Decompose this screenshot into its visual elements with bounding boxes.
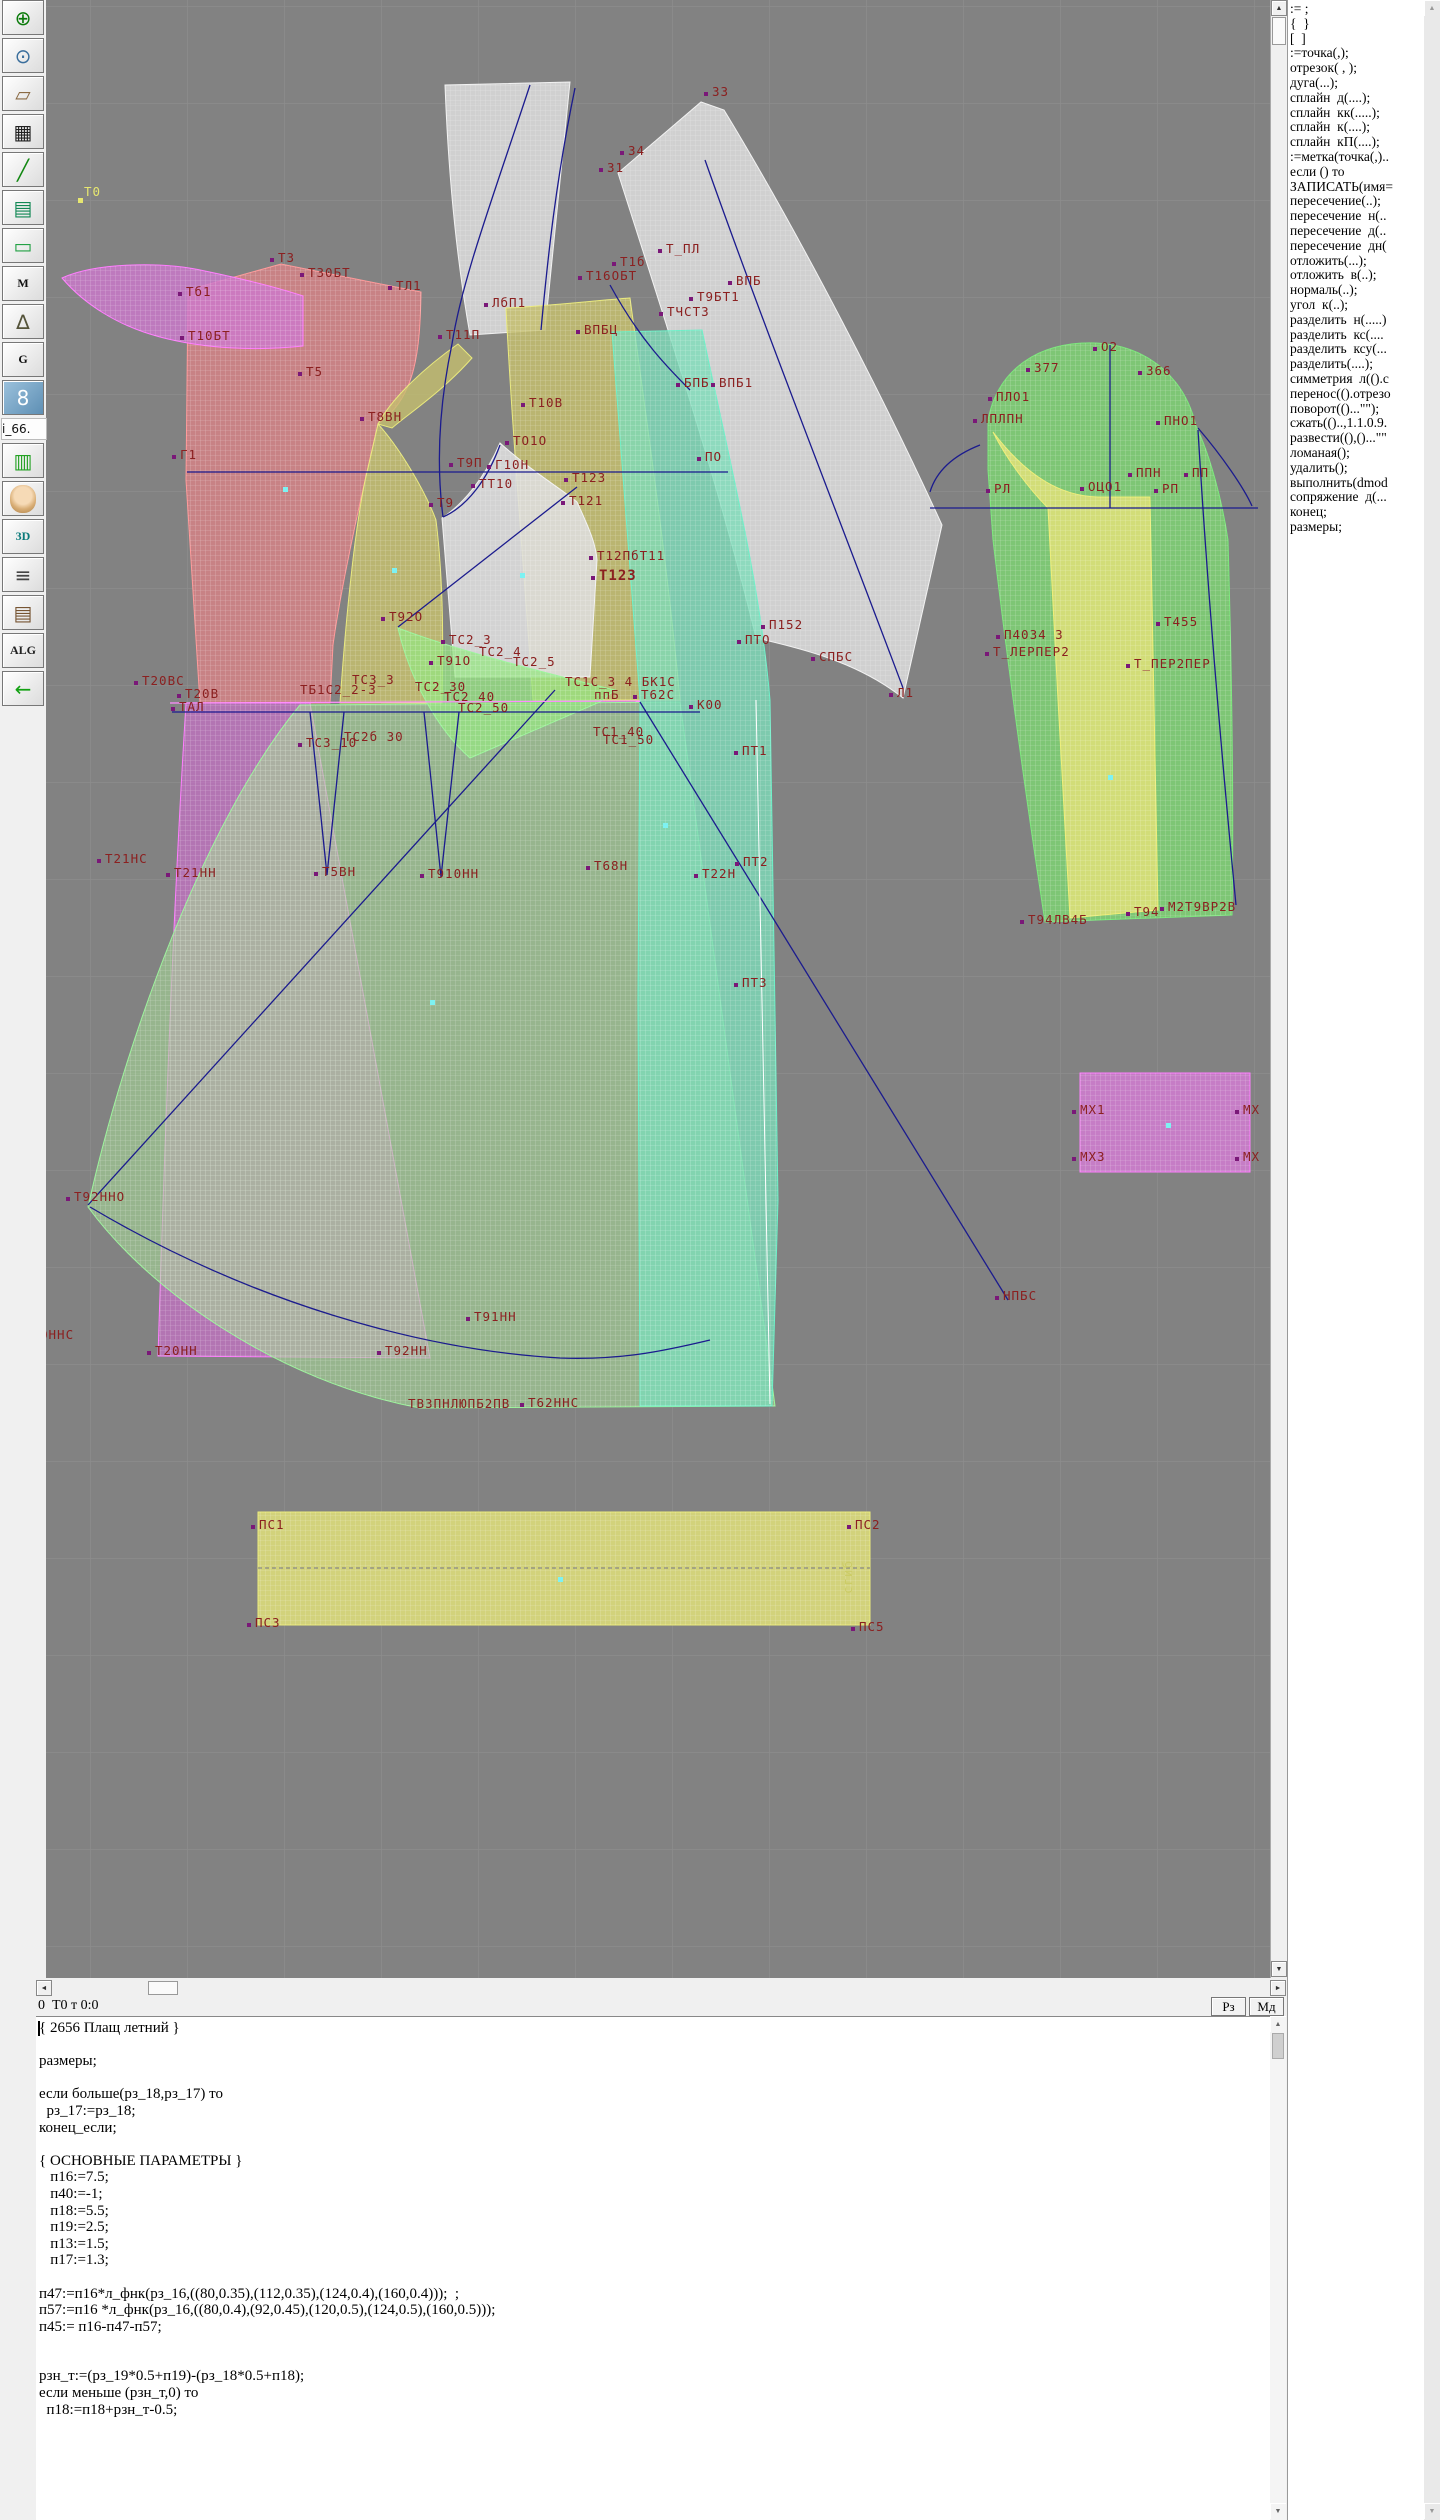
canvas-label: МХ3: [1080, 1149, 1106, 1164]
command-item[interactable]: разделить н(.....): [1288, 313, 1425, 328]
canvas-label: ВПБ: [736, 273, 762, 288]
command-item[interactable]: разделить(....);: [1288, 357, 1425, 372]
canvas-label: ТАЛ: [179, 699, 205, 714]
point-marker: [1156, 622, 1160, 626]
point-marker: [988, 397, 992, 401]
command-item[interactable]: отрезок( , );: [1288, 61, 1425, 76]
point-marker: [521, 403, 525, 407]
point-marker: [1235, 1157, 1239, 1161]
command-item[interactable]: сплайн к(....);: [1288, 120, 1425, 135]
point-marker: [1235, 1110, 1239, 1114]
label-tag-icon: ▱: [15, 84, 30, 104]
canvas-label: Т3: [278, 250, 295, 265]
point-marker: [66, 1197, 70, 1201]
label-tag-icon[interactable]: ▱: [2, 76, 44, 111]
text-list-icon[interactable]: ≡: [2, 557, 44, 592]
exit-arrow-icon[interactable]: ←: [2, 671, 44, 706]
scroll-up-icon[interactable]: ▲: [1271, 0, 1287, 16]
canvas-label: ПТО: [745, 632, 771, 647]
cyan-marker: [520, 573, 525, 578]
scroll-up-icon[interactable]: ▲: [1270, 2016, 1286, 2032]
zoom-in-icon: ⊕: [15, 8, 32, 28]
canvas-label: М2Т9ВР2В: [1168, 899, 1236, 914]
canvas-label: 34: [628, 143, 645, 158]
point-marker: [429, 503, 433, 507]
point-marker: [429, 661, 433, 665]
canvas-label: Т_ПЕР2ПЕР: [1134, 656, 1211, 671]
command-item[interactable]: нормаль(..);: [1288, 283, 1425, 298]
command-item[interactable]: выполнить(dmod: [1288, 476, 1425, 491]
point-marker: [578, 276, 582, 280]
grid-icon[interactable]: ▦: [2, 114, 44, 149]
code-line: конец_если;: [36, 2120, 1270, 2137]
point-marker: [178, 292, 182, 296]
threed-icon[interactable]: 3D: [2, 519, 44, 554]
canvas-label: ТС2_50: [458, 700, 509, 715]
canvas-label: ПТ3: [742, 975, 768, 990]
command-item[interactable]: угол к(..);: [1288, 298, 1425, 313]
scroll-left-icon[interactable]: ◄: [36, 1980, 52, 1996]
canvas-label: Т10БТ: [188, 328, 231, 343]
canvas-label: ВПБ1: [719, 375, 753, 390]
command-item[interactable]: [ ]: [1288, 32, 1425, 47]
canvas-label: Т0: [84, 184, 101, 199]
canvas-label: Т9П: [457, 455, 483, 470]
pattern-tag-icon[interactable]: ▭: [2, 228, 44, 263]
canvas-label: ПС2: [855, 1517, 881, 1532]
alg-icon: ALG: [10, 643, 36, 658]
point-marker: [97, 859, 101, 863]
canvas-label: Т22Н: [702, 866, 736, 881]
point-marker: [180, 336, 184, 340]
canvas-label: Л1: [897, 685, 914, 700]
canvas-label: Т11П: [446, 327, 480, 342]
canvas-label: Т_ПЛ: [666, 241, 700, 256]
point-marker: [889, 693, 893, 697]
scroll-down-icon[interactable]: ▼: [1271, 1961, 1287, 1977]
canvas-label: Т62ННС: [528, 1395, 579, 1410]
canvas-label: Т62С: [641, 687, 675, 702]
grid-icon: ▦: [14, 122, 33, 142]
canvas-horizontal-scrollbar[interactable]: ◄ ►: [36, 1980, 1286, 1997]
zoom-out-icon[interactable]: ⊙: [2, 38, 44, 73]
canvas-label: Т910НН: [428, 866, 479, 881]
canvas-label: Г1: [180, 447, 197, 462]
point-marker: [381, 617, 385, 621]
point-marker: [561, 501, 565, 505]
point-marker: [420, 874, 424, 878]
document-chart-icon[interactable]: ▤: [2, 190, 44, 225]
command-item[interactable]: разделить ксу(...: [1288, 342, 1425, 357]
point-marker: [711, 383, 715, 387]
code-editor[interactable]: { 2656 Плащ летний } размеры; если больш…: [36, 2016, 1270, 2520]
point-marker: [520, 1403, 524, 1407]
point-marker: [377, 1351, 381, 1355]
command-item[interactable]: разделить кс(....: [1288, 328, 1425, 343]
canvas-label: РП: [1162, 481, 1179, 496]
point-marker: [986, 489, 990, 493]
point-marker: [298, 372, 302, 376]
command-item[interactable]: сплайн кк(.....);: [1288, 106, 1425, 121]
segment-icon[interactable]: ╱: [2, 152, 44, 187]
code-line: [36, 2037, 1270, 2054]
books-icon[interactable]: ▤: [2, 595, 44, 630]
point-marker: [1156, 421, 1160, 425]
canvas-label: БПБ: [684, 375, 710, 390]
code-line: если меньше (рзн_т,0) то: [36, 2385, 1270, 2402]
command-item[interactable]: { }: [1288, 17, 1425, 32]
canvas-label: ТС1_50: [603, 732, 654, 747]
table-icon[interactable]: ▥: [2, 443, 44, 478]
canvas-label: Т5: [306, 364, 323, 379]
point-marker: [438, 335, 442, 339]
command-item[interactable]: сопряжение д(...: [1288, 490, 1425, 505]
canvas-label: 31: [607, 160, 624, 175]
canvas-label: Т21НС: [105, 851, 148, 866]
status-text: 0 Т0 т 0:0: [38, 1998, 99, 2014]
canvas-label: Т21НН: [174, 865, 217, 880]
canvas-label: Т455: [1164, 614, 1198, 629]
command-item[interactable]: перенос(().отрезо: [1288, 387, 1425, 402]
canvas-label: сгиб: [840, 1560, 855, 1594]
cyan-marker: [1166, 1123, 1171, 1128]
canvas-label: ОННС: [46, 1327, 74, 1342]
canvas-label: Т92НН: [385, 1343, 428, 1358]
cyan-marker: [663, 823, 668, 828]
code-line: п16:=7.5;: [36, 2169, 1270, 2186]
point-marker: [591, 576, 595, 580]
hscroll-thumb[interactable]: [148, 1981, 178, 1995]
canvas-vertical-scrollbar[interactable]: ▲ ▼: [1270, 0, 1287, 1978]
command-item[interactable]: отложить в(..);: [1288, 268, 1425, 283]
vscroll-thumb[interactable]: [1272, 17, 1286, 45]
ruler-8-icon[interactable]: 8: [2, 380, 44, 415]
cad-application-window: ⊕⊙▱▦╱▤▭M∆G8i_66.▥3D≡▤ALG←: [0, 0, 1440, 2520]
command-item[interactable]: пересечение д(..: [1288, 224, 1425, 239]
exit-arrow-icon: ←: [15, 679, 32, 699]
canvas-label: МХ: [1243, 1149, 1260, 1164]
scroll-down-icon[interactable]: ▼: [1424, 2503, 1440, 2519]
point-marker: [1160, 907, 1164, 911]
canvas-label: ТО1О: [513, 433, 547, 448]
canvas-label: Т92О: [389, 609, 423, 624]
canvas-label: ПТ2: [743, 854, 769, 869]
document-chart-icon: ▤: [14, 198, 33, 218]
command-item[interactable]: пересечение дн(: [1288, 239, 1425, 254]
g-module-icon[interactable]: G: [2, 342, 44, 377]
code-line: п18:=5.5;: [36, 2203, 1270, 2220]
point-marker: [471, 484, 475, 488]
point-marker: [388, 286, 392, 290]
canvas-label: Т123: [599, 568, 637, 584]
canvas-label: ТС2б 30: [344, 729, 404, 744]
code-line: { ОСНОВНЫЕ ПАРАМЕТРЫ }: [36, 2153, 1270, 2170]
command-item[interactable]: дуга(...);: [1288, 76, 1425, 91]
point-marker: [1020, 920, 1024, 924]
md-button[interactable]: Мд: [1249, 1997, 1284, 2016]
code-line: рзн_т:=(рз_19*0.5+п19)-(рз_18*0.5+п18);: [36, 2368, 1270, 2385]
canvas-label: ПС3: [255, 1615, 281, 1630]
point-marker: [1138, 371, 1142, 375]
point-marker: [171, 707, 175, 711]
canvas-label: Т92ННО: [74, 1189, 125, 1204]
point-marker: [689, 297, 693, 301]
canvas-label: ТТ10: [479, 476, 513, 491]
i66-label[interactable]: i_66.: [1, 418, 47, 440]
alg-icon[interactable]: ALG: [2, 633, 44, 668]
point-marker: [689, 705, 693, 709]
point-marker: [996, 635, 1000, 639]
point-marker: [734, 751, 738, 755]
canvas-label: ТС3_3: [352, 672, 395, 687]
canvas-label: НПБС: [1003, 1288, 1037, 1303]
canvas-label: ПП: [1192, 465, 1209, 480]
point-marker: [1026, 368, 1030, 372]
point-marker: [1093, 347, 1097, 351]
point-marker: [564, 478, 568, 482]
code-line: [36, 2070, 1270, 2087]
point-marker: [1184, 473, 1188, 477]
canvas-label: 366: [1146, 363, 1172, 378]
canvas-label: Тб1: [186, 284, 212, 299]
point-marker: [172, 455, 176, 459]
point-marker: [505, 441, 509, 445]
canvas-label: ПС5: [859, 1619, 885, 1634]
code-line: если больше(рз_18,рз_17) то: [36, 2086, 1270, 2103]
cyan-marker: [283, 487, 288, 492]
point-marker: [589, 556, 593, 560]
point-marker: [737, 640, 741, 644]
point-marker: [484, 303, 488, 307]
command-item[interactable]: сжать(()..,1.1.0.9.: [1288, 416, 1425, 431]
point-marker: [620, 151, 624, 155]
canvas-label: Т94ЛВ4Б: [1028, 912, 1088, 927]
canvas-label: Т94: [1134, 904, 1160, 919]
canvas-label: 377: [1034, 360, 1060, 375]
code-line: п45:= п16-п47-п57;: [36, 2319, 1270, 2336]
point-marker: [360, 417, 364, 421]
canvas-label: РЛ: [994, 481, 1011, 496]
cyan-marker: [558, 1577, 563, 1582]
point-marker: [466, 1317, 470, 1321]
point-marker: [973, 419, 977, 423]
canvas-label: МХ: [1243, 1102, 1260, 1117]
code-line: п47:=п16*л_фнк(рз_16,((80,0.35),(112,0.3…: [36, 2286, 1270, 2303]
pattern-canvas[interactable]: Т0Т3Т30БТТЛ1Тб1Т10БТТ5333431Т_ПЛТ1бТ16ОБ…: [46, 0, 1270, 1978]
canvas-label: МХ1: [1080, 1102, 1106, 1117]
point-marker: [314, 872, 318, 876]
cyan-marker: [1108, 775, 1113, 780]
canvas-label: ТЧСТ3: [667, 304, 710, 319]
canvas-label: Т30БТ: [308, 265, 351, 280]
point-marker: [761, 625, 765, 629]
editor-scroll-thumb[interactable]: [1272, 2033, 1284, 2059]
drafting-compass-icon: ∆: [16, 312, 29, 332]
code-line: п19:=2.5;: [36, 2219, 1270, 2236]
point-marker: [658, 249, 662, 253]
point-marker: [1072, 1157, 1076, 1161]
canvas-label: ЛПЛПН: [981, 411, 1024, 426]
command-item[interactable]: :=точка(,);: [1288, 46, 1425, 61]
canvas-label: ППН: [1136, 465, 1162, 480]
code-line: п13:=1.5;: [36, 2236, 1270, 2253]
scroll-right-icon[interactable]: ►: [1270, 1980, 1286, 1996]
code-line: п17:=1.3;: [36, 2252, 1270, 2269]
point-marker: [985, 652, 989, 656]
point-marker: [1080, 487, 1084, 491]
text-caret: [38, 2021, 40, 2036]
canvas-label: Т20НН: [155, 1343, 198, 1358]
point-marker: [177, 694, 181, 698]
rz-button[interactable]: Рз: [1211, 1997, 1246, 2016]
command-item[interactable]: размеры;: [1288, 520, 1425, 535]
code-line: п18:=п18+рзн_т-0.5;: [36, 2402, 1270, 2419]
point-marker: [251, 1525, 255, 1529]
cyan-marker: [392, 568, 397, 573]
m-module-icon: M: [17, 276, 28, 291]
canvas-label: Т10В: [529, 395, 563, 410]
books-icon: ▤: [14, 603, 33, 623]
canvas-label: ПО: [705, 449, 722, 464]
point-marker: [1128, 473, 1132, 477]
portrait-icon[interactable]: [2, 481, 44, 516]
point-marker: [134, 681, 138, 685]
point-marker: [676, 383, 680, 387]
canvas-label: Т91НН: [474, 1309, 517, 1324]
point-marker: [697, 457, 701, 461]
segment-icon: ╱: [17, 160, 29, 180]
command-item[interactable]: := ;: [1288, 2, 1425, 17]
point-marker: [659, 312, 663, 316]
canvas-label: СПБС: [819, 649, 853, 664]
canvas-label: Т123: [572, 470, 606, 485]
code-line: размеры;: [36, 2053, 1270, 2070]
command-item[interactable]: сплайн д(....);: [1288, 91, 1425, 106]
command-item[interactable]: ломаная();: [1288, 446, 1425, 461]
canvas-label: ТЛ1: [396, 278, 422, 293]
canvas-label: П4034 3: [1004, 627, 1064, 642]
canvas-label: Т9: [437, 495, 454, 510]
command-item[interactable]: пересечение(..);: [1288, 194, 1425, 209]
command-item[interactable]: симметрия л(().с: [1288, 372, 1425, 387]
command-item[interactable]: удалить();: [1288, 461, 1425, 476]
point-marker: [441, 640, 445, 644]
code-line: [36, 2352, 1270, 2369]
zoom-out-icon: ⊙: [15, 46, 32, 66]
command-item[interactable]: сплайн кП(....);: [1288, 135, 1425, 150]
point-marker: [633, 695, 637, 699]
command-item[interactable]: ЗАПИСАТЬ(имя=: [1288, 180, 1425, 195]
point-marker: [811, 657, 815, 661]
canvas-label: ПТ1: [742, 743, 768, 758]
panel-vertical-scrollbar[interactable]: ▲ ▼: [1424, 0, 1440, 2520]
canvas-label: Т91О: [437, 653, 471, 668]
command-item[interactable]: конец;: [1288, 505, 1425, 520]
face-image: [10, 485, 36, 513]
point-marker: [487, 465, 491, 469]
point-marker: [851, 1627, 855, 1631]
command-item[interactable]: пересечение н(..: [1288, 209, 1425, 224]
point-marker: [734, 983, 738, 987]
point-marker: [847, 1525, 851, 1529]
canvas-label: Т68Н: [594, 858, 628, 873]
command-item[interactable]: отложить(...);: [1288, 254, 1425, 269]
canvas-label: Т5ВН: [322, 864, 356, 879]
point-marker: [599, 168, 603, 172]
code-line: рз_17:=рз_18;: [36, 2103, 1270, 2120]
command-item[interactable]: :=метка(точка(,)..: [1288, 150, 1425, 165]
point-marker: [147, 1351, 151, 1355]
table-icon: ▥: [14, 451, 33, 471]
canvas-label: Г10Н: [495, 457, 529, 472]
canvas-label: ПНО1: [1164, 413, 1198, 428]
m-module-icon[interactable]: M: [2, 266, 44, 301]
point-marker: [576, 330, 580, 334]
point-marker: [300, 273, 304, 277]
text-list-icon: ≡: [15, 565, 32, 585]
point-marker: [612, 262, 616, 266]
point-marker: [995, 1296, 999, 1300]
canvas-label: ппБ: [594, 687, 620, 702]
canvas-label: П152: [769, 617, 803, 632]
point-marker: [1126, 664, 1130, 668]
canvas-label: Т20ВС: [142, 673, 185, 688]
code-line: [36, 2136, 1270, 2153]
code-line: п57:=п16 *л_фнк(рз_16,((80,0.4),(92,0.45…: [36, 2302, 1270, 2319]
canvas-label: ЛбП1: [492, 295, 526, 310]
zoom-in-icon[interactable]: ⊕: [2, 0, 44, 35]
point-marker: [270, 258, 274, 262]
command-item[interactable]: поворот(()..."");: [1288, 402, 1425, 417]
point-marker: [298, 743, 302, 747]
command-item[interactable]: если () то: [1288, 165, 1425, 180]
canvas-label: Т1б: [620, 254, 646, 269]
canvas-label: Т_ЛЕРПЕР2: [993, 644, 1070, 659]
canvas-label: ТВЗПНЛЮПБ2ПВ: [408, 1396, 510, 1411]
yellow-marker: [78, 198, 83, 203]
canvas-label: Т121: [569, 493, 603, 508]
canvas-label: 33: [712, 84, 729, 99]
canvas-label: ВПБЦ: [584, 322, 618, 337]
point-marker: [1154, 489, 1158, 493]
canvas-label: ОЦО1: [1088, 479, 1122, 494]
canvas-label: О2: [1101, 339, 1118, 354]
point-marker: [728, 281, 732, 285]
point-marker: [247, 1623, 251, 1627]
g-module-icon: G: [18, 352, 27, 367]
pattern-tag-icon: ▭: [14, 236, 33, 256]
point-marker: [449, 463, 453, 467]
scroll-up-icon[interactable]: ▲: [1424, 0, 1440, 16]
scroll-down-icon[interactable]: ▼: [1270, 2503, 1286, 2519]
point-marker: [1126, 912, 1130, 916]
ruler-8-icon: 8: [17, 388, 30, 408]
canvas-label: Т12ПбТ11: [597, 548, 665, 563]
point-marker: [166, 873, 170, 877]
command-item[interactable]: развести((),()..."": [1288, 431, 1425, 446]
editor-vertical-scrollbar[interactable]: ▲ ▼: [1270, 2016, 1286, 2520]
cyan-marker: [430, 1000, 435, 1005]
canvas-label: ТС2_5: [513, 654, 556, 669]
canvas-label: Т16ОБТ: [586, 268, 637, 283]
code-line: п40:=-1;: [36, 2186, 1270, 2203]
code-line: [36, 2269, 1270, 2286]
command-list-panel: := ;{ }[ ]:=точка(,);отрезок( , );дуга(.…: [1287, 0, 1425, 2520]
drafting-compass-icon[interactable]: ∆: [2, 304, 44, 339]
canvas-label: ПС1: [259, 1517, 285, 1532]
point-marker: [1072, 1110, 1076, 1114]
status-bar: 0 Т0 т 0:0 Рз Мд: [36, 1997, 1286, 2016]
